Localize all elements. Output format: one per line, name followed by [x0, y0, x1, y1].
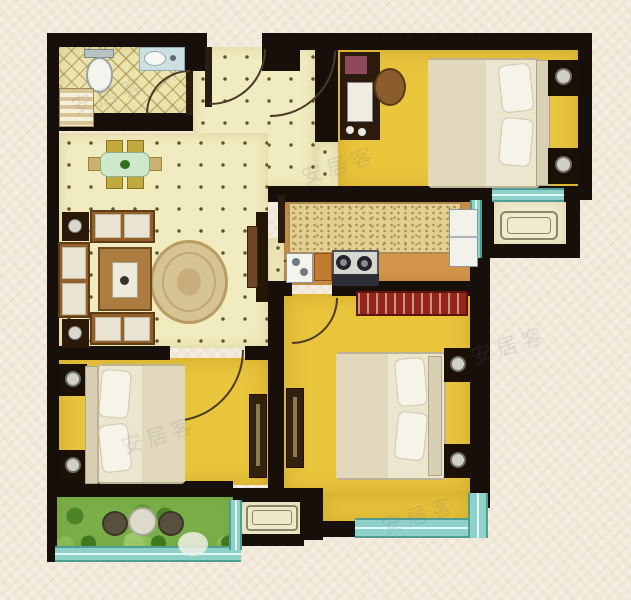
wall-living-bedroom2-right [245, 346, 268, 360]
rug-center [177, 268, 201, 296]
bed1-pillow [498, 62, 535, 113]
wall-platform-bottom [242, 534, 304, 546]
nightstand-lamp [555, 68, 572, 85]
cutting-board [314, 253, 332, 281]
fridge [449, 209, 478, 267]
dining-side-seat [149, 157, 162, 171]
dining-chair [106, 175, 123, 189]
sofa-cushion [124, 214, 150, 238]
wall-kitchen-bottom-left [268, 281, 292, 296]
dining-chair [127, 175, 144, 189]
sofa-cushion [62, 283, 86, 315]
bed3-pillow [394, 357, 428, 407]
garden-flower [178, 532, 208, 556]
wall-balcony-bottom [480, 244, 580, 258]
window-garden-bottom [55, 546, 241, 562]
coffee-table-item [120, 276, 129, 285]
wall-top-right [262, 33, 592, 50]
wall-kitchen-balcony [480, 195, 494, 258]
bed1-pillow [498, 117, 534, 168]
sofa-lamp [68, 219, 82, 233]
fridge-divider [449, 236, 478, 238]
tv [247, 226, 258, 288]
vanity-sink [144, 51, 166, 66]
bed1-blanket [428, 60, 486, 186]
nightstand-lamp [450, 356, 466, 372]
wall-living-bedroom2-left [47, 346, 170, 360]
floor-plan-image: 安居客安居客安居客安居客安居客 [0, 0, 631, 600]
stepping-stone-light [128, 507, 157, 536]
nightstand-lamp [65, 457, 81, 473]
dresser [356, 291, 468, 316]
stepping-stone [102, 511, 128, 536]
nightstand-lamp [450, 452, 466, 468]
sofa-cushion [62, 247, 86, 279]
window-garden-right [229, 500, 242, 550]
desk-item [345, 56, 367, 74]
desk-accessory [346, 126, 354, 134]
desk-chair [374, 68, 406, 106]
wall-bedroom1-right [578, 33, 592, 200]
kitchen-counter [288, 202, 462, 254]
stepping-stone [158, 511, 184, 536]
sink-basin [300, 268, 308, 276]
window-bedroom3-corner [468, 493, 488, 538]
vanity-faucet [170, 55, 176, 61]
stove-burner-center [340, 259, 347, 266]
sofa-lamp [68, 326, 82, 340]
wall-mid-vertical [268, 296, 284, 497]
wall-bathroom-right-stub [185, 33, 205, 71]
nightstand-lamp [555, 156, 572, 173]
nightstand-lamp [65, 371, 81, 387]
stove-panel [332, 274, 379, 286]
sink-basin [292, 258, 300, 266]
kitchen-sink [286, 253, 313, 283]
desk-accessory [358, 128, 366, 136]
desk-monitor [347, 82, 373, 122]
sofa-cushion [95, 317, 121, 341]
bed3-pillow [394, 411, 429, 462]
stove-burner-center [361, 260, 368, 267]
ac-platform-unit-inner [252, 510, 292, 525]
dining-table-centerpiece [120, 160, 130, 169]
sofa-cushion [95, 214, 121, 238]
bed3-blanket [336, 354, 388, 478]
window-bedroom1-balcony [492, 188, 564, 202]
wardrobe-handle [256, 404, 260, 466]
balcony-unit-inner [507, 217, 551, 234]
wardrobe-handle [293, 397, 297, 457]
wall-top-left [47, 33, 207, 47]
bed3-headboard [428, 356, 442, 476]
bed2-pillow [98, 369, 132, 419]
sofa-cushion [124, 317, 150, 341]
